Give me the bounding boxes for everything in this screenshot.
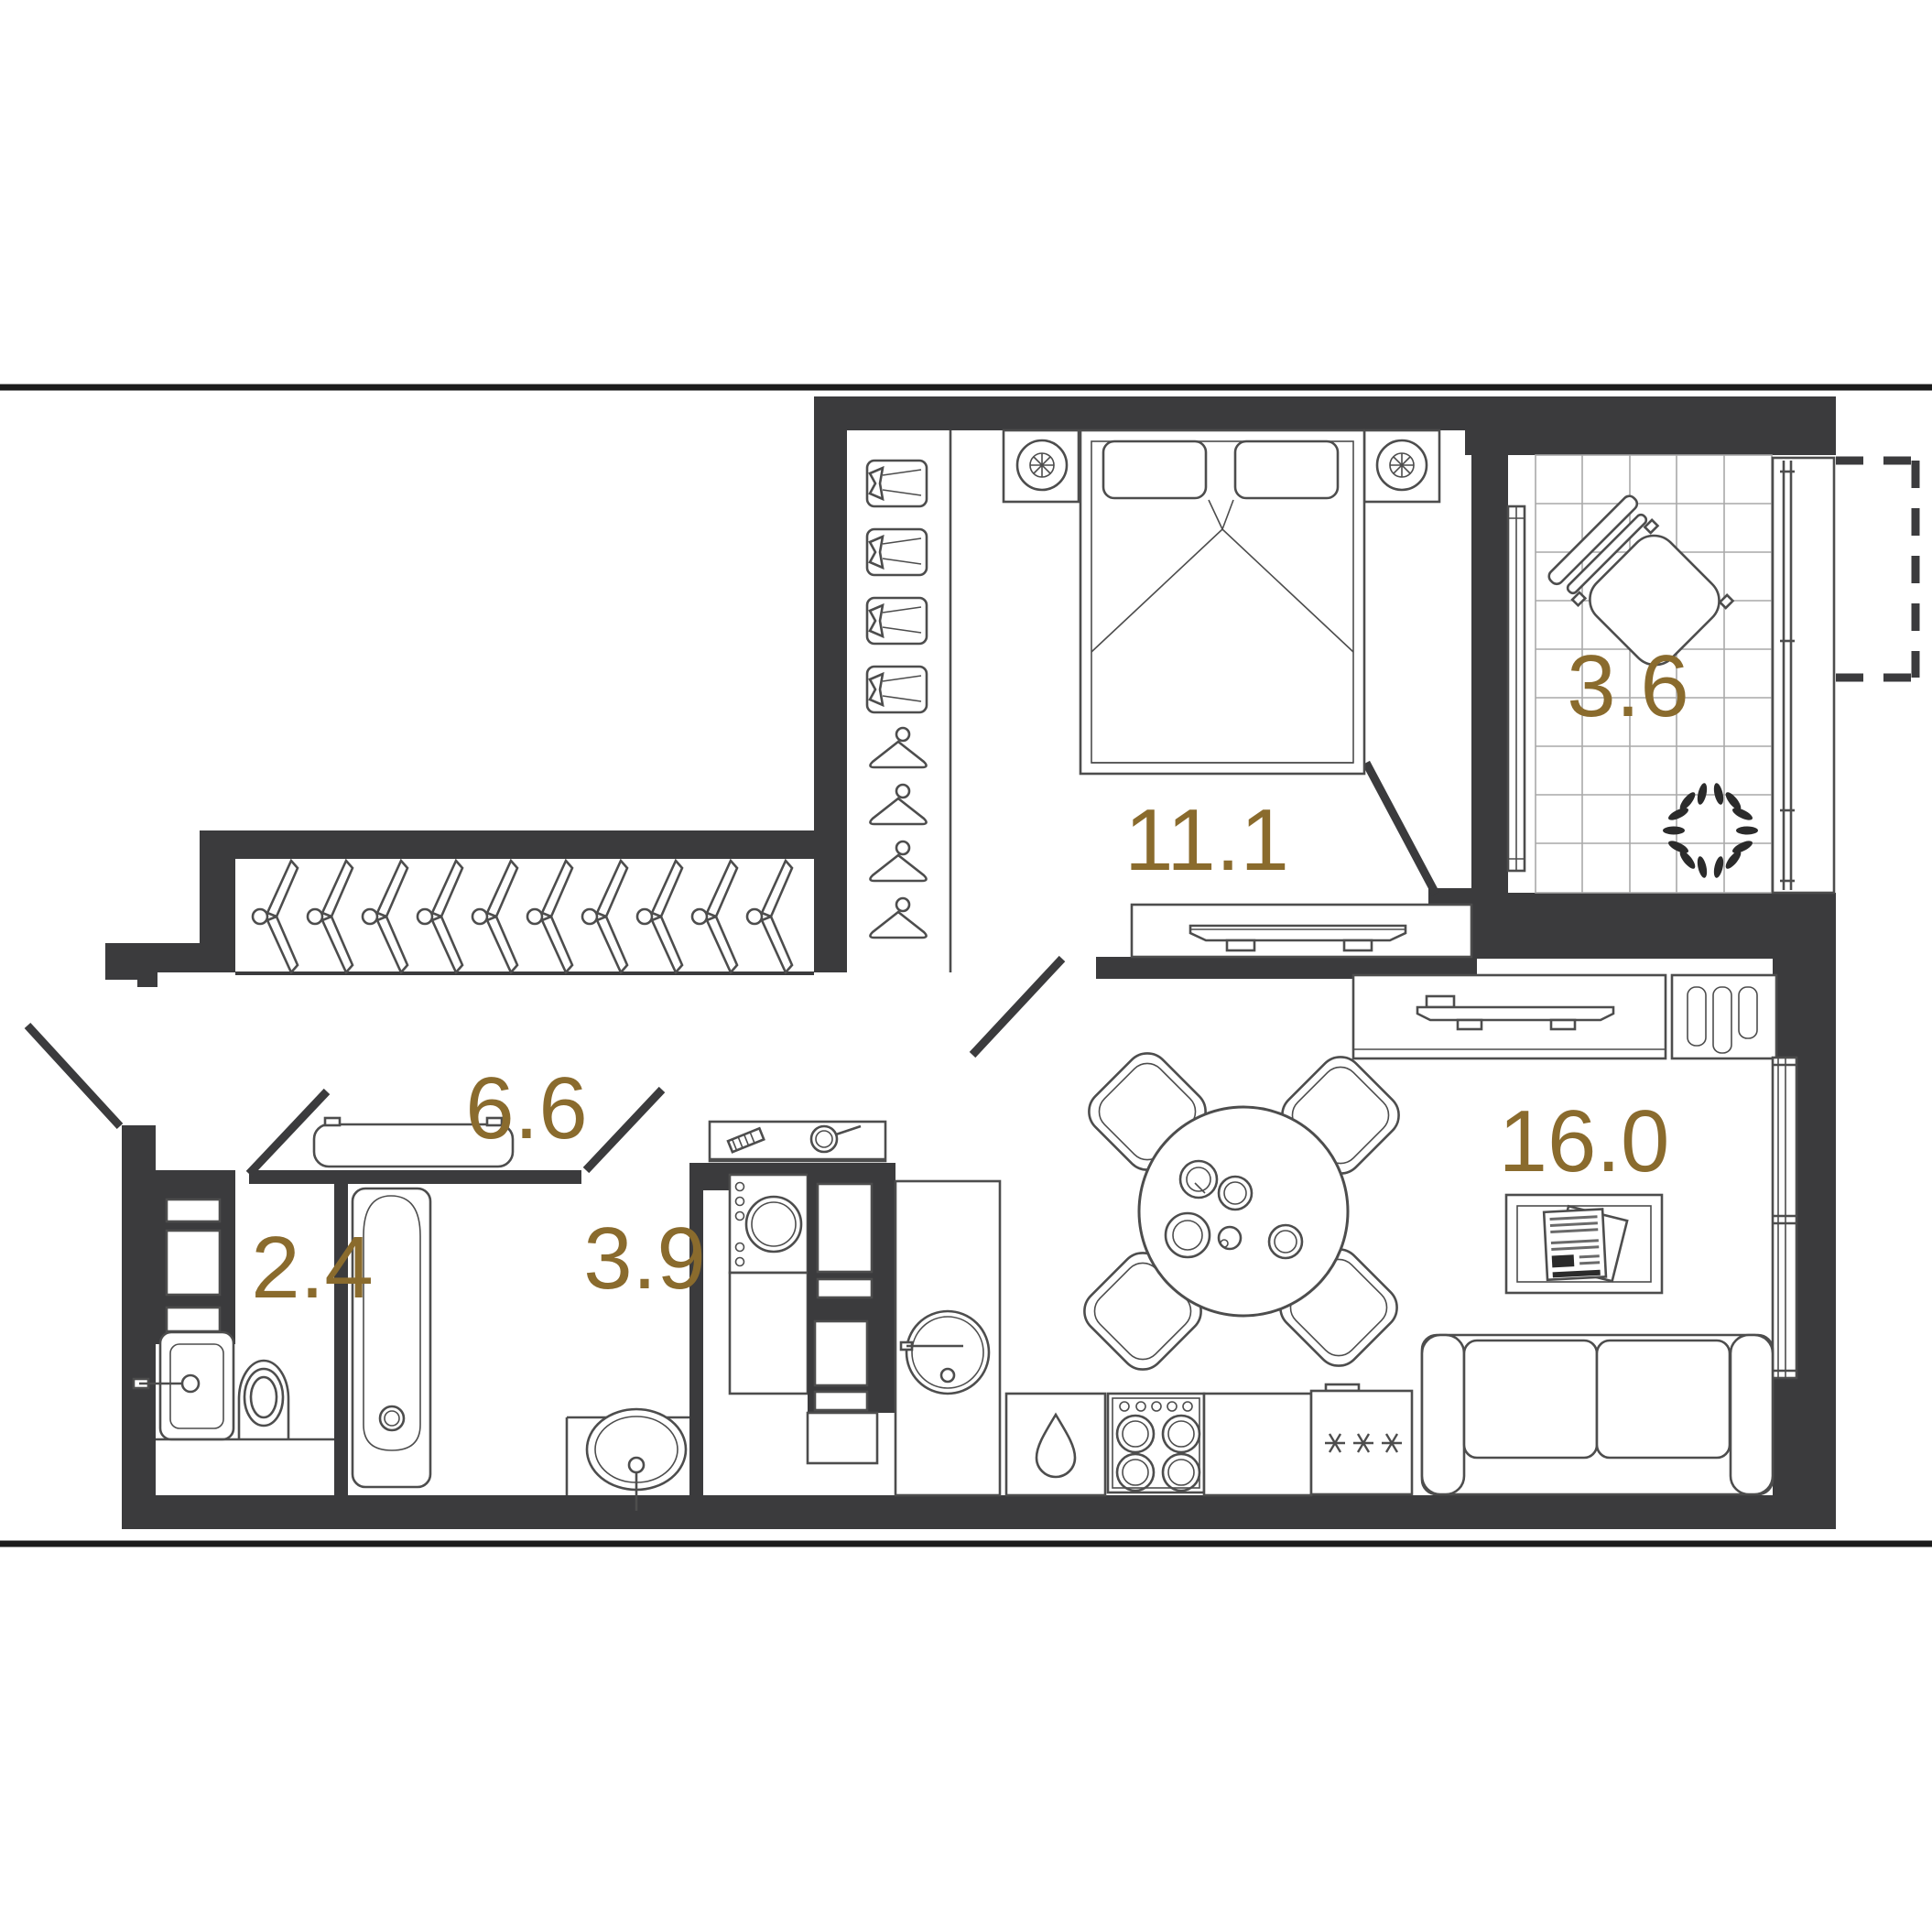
floor-plan-canvas: 2.4 3.9 6.6 11.1 3.6 16.0: [0, 0, 1932, 1932]
dining-table-icon: [1075, 1044, 1407, 1378]
nightstand-lamp-icon: [1364, 430, 1439, 502]
wardrobe-shelf-icon: [867, 461, 927, 712]
wardrobe-slots: [1672, 975, 1776, 1058]
double-bed-icon: [1080, 430, 1364, 774]
dashed-opening-annotation: [1836, 461, 1916, 678]
kitchen-living-area-label: 16.0: [1499, 1092, 1670, 1190]
kitchen-counter: [710, 1122, 885, 1161]
base-cabinet-sink: [1006, 1394, 1105, 1495]
fridge-snowflake-icon: [1311, 1384, 1412, 1494]
sideboard-tv: [1353, 975, 1666, 1058]
kitchen-living-room: [710, 975, 1796, 1495]
utility-shaft: [167, 1199, 220, 1331]
counter-cabinet: [1204, 1394, 1311, 1495]
hanger-icon: [870, 728, 926, 938]
nightstand-lamp-icon: [1004, 430, 1079, 502]
window-glazing-icon: [1773, 1058, 1796, 1378]
kitchen-sink-icon: [895, 1181, 1000, 1495]
bedroom-area-label: 11.1: [1124, 791, 1289, 889]
sofa-icon: [1422, 1335, 1773, 1494]
bathroom-door-swing: [586, 1090, 662, 1170]
balcony-area-label: 3.6: [1567, 637, 1688, 735]
floor-plan-drawing: 2.4 3.9 6.6 11.1 3.6 16.0: [0, 0, 1932, 1932]
stove-icon: [1108, 1394, 1204, 1492]
window-glazing-icon: [1508, 506, 1525, 871]
hanger-icon: [253, 861, 792, 972]
toilet-icon: [239, 1361, 288, 1439]
bedroom-room: [867, 430, 1471, 972]
tall-cabinet: [808, 1169, 895, 1463]
tv-icon: [1132, 905, 1471, 957]
hallway-closet-hangers: [253, 861, 792, 972]
bedroom-door-swing: [972, 959, 1062, 1055]
rug-newspaper-icon: [1506, 1195, 1662, 1293]
bathroom-area-label: 3.9: [583, 1210, 705, 1308]
washing-machine-icon: [730, 1175, 808, 1394]
bedroom-inner-door-swing: [1366, 763, 1436, 894]
wc-area-label: 2.4: [251, 1219, 373, 1317]
window-glazing-icon: [1773, 458, 1834, 893]
wc-room: [134, 1332, 334, 1439]
hallway-area-label: 6.6: [465, 1059, 587, 1157]
tv-icon: [1417, 1007, 1613, 1020]
entrance-door-swing: [27, 1026, 120, 1126]
